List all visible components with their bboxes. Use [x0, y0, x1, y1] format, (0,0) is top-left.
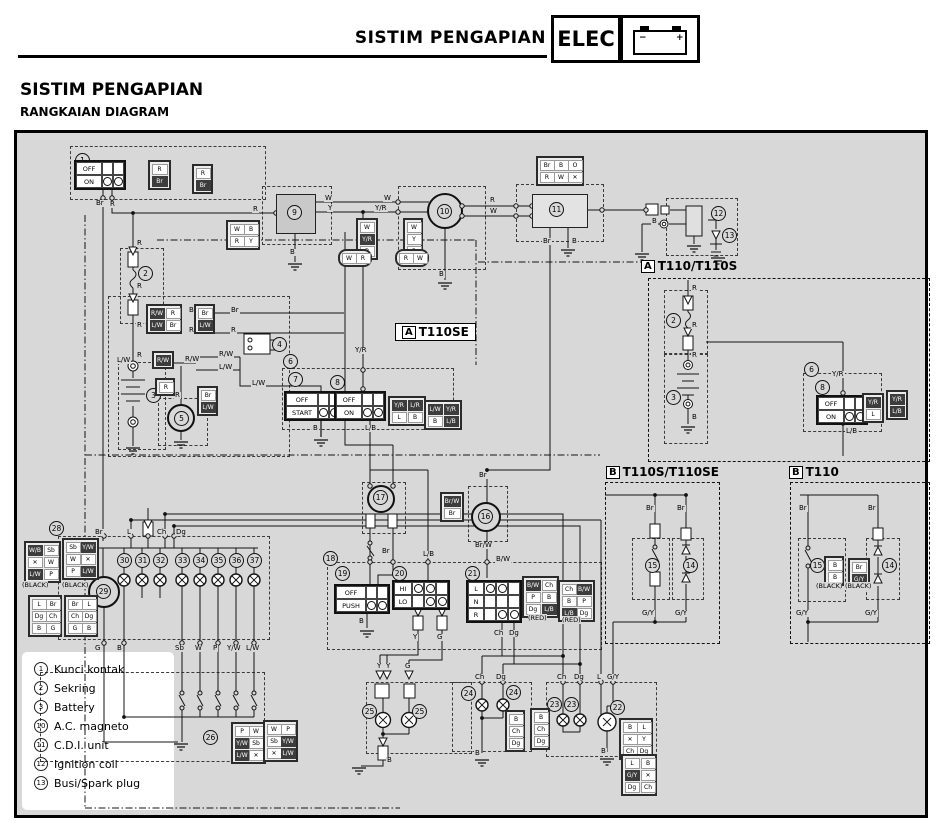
switch-cell: [377, 586, 388, 599]
pin: R: [399, 253, 414, 264]
switch-row-label: START: [286, 406, 318, 419]
pin: W/B: [28, 545, 43, 556]
connector[interactable]: Br/WBr: [440, 492, 464, 522]
connector[interactable]: RW: [395, 249, 429, 267]
component-number-22: 22: [610, 700, 625, 715]
section-label-t110se: AT110SE: [395, 323, 476, 341]
component-number-4: 4: [272, 337, 287, 352]
wire-label: L: [596, 674, 602, 681]
pin: Br: [196, 180, 211, 191]
pin: Y/R: [866, 397, 881, 408]
connector-color-marker: (RED): [528, 614, 547, 622]
switch-cell: [318, 393, 329, 406]
wire-label: L/W: [251, 380, 266, 387]
pin: Sb: [267, 736, 282, 747]
horn-switch-table[interactable]: OFF PUSH: [334, 584, 390, 614]
connector[interactable]: BrL/W: [194, 304, 215, 334]
component-number-15: 15: [810, 558, 825, 573]
pin: Ch: [68, 611, 83, 622]
switch-contact: [412, 582, 424, 595]
wire-label: Ch: [493, 630, 504, 637]
wire-label: W: [489, 208, 498, 215]
connector[interactable]: RBr: [192, 164, 213, 194]
pin: Br: [198, 308, 213, 319]
switch-row-label: ON: [336, 406, 362, 419]
pin: B: [828, 560, 843, 571]
switch-cell: [508, 582, 520, 595]
wire-label: B: [600, 748, 607, 755]
pin: L: [625, 758, 640, 769]
switch-row-label: ON: [76, 175, 102, 188]
section-label-t110: BT110: [789, 465, 839, 479]
component-number-24: 24: [461, 686, 476, 701]
legend-label: A.C. magneto: [54, 720, 129, 733]
component-number-15: 15: [645, 558, 660, 573]
battery-minus-sign: −: [639, 34, 647, 43]
wire-label: Br: [381, 548, 391, 555]
legend-number: 12: [34, 757, 48, 771]
wire-label: R: [136, 240, 143, 247]
pin: B: [623, 722, 638, 733]
component-number-6: 6: [804, 362, 819, 377]
legend-item: 12Ignition coil: [34, 757, 118, 771]
connector[interactable]: W/BSb✕WL/WP: [24, 541, 61, 583]
pin: Y: [407, 234, 422, 245]
component-number-21: 21: [465, 566, 480, 581]
component-number-24: 24: [506, 685, 521, 700]
pin: L/W: [281, 748, 296, 759]
wire-label: Br: [645, 505, 655, 512]
wire-label: Ch: [556, 674, 567, 681]
wire-label: R/W: [218, 351, 234, 358]
legend-number: 3: [34, 700, 48, 714]
legend-number: 1: [34, 662, 48, 676]
pin: ✕: [568, 172, 583, 183]
pin: Dg: [82, 611, 97, 622]
component-number-33: 33: [175, 553, 190, 568]
pin: L/B: [542, 604, 557, 615]
wire-label: R: [174, 392, 181, 399]
wire-label: Br/W: [474, 542, 493, 549]
wire-label: L/B: [364, 425, 377, 432]
component-number-10: 10: [437, 204, 452, 219]
component-number-9: 9: [287, 205, 302, 220]
pin: B: [32, 623, 47, 634]
switch-contact: [318, 406, 329, 419]
component-number-30: 30: [117, 553, 132, 568]
battery-plus-sign: +: [676, 34, 684, 43]
component-number-20: 20: [392, 566, 407, 581]
switch-row-label: N: [468, 595, 484, 608]
pin: Dg: [534, 736, 549, 747]
component-number-28: 28: [49, 521, 64, 536]
switch-row-label: OFF: [818, 397, 844, 410]
connector[interactable]: B/WChPBDgL/B: [522, 576, 559, 618]
section-tag: B: [789, 466, 803, 479]
connector-color-marker: (BLACK): [22, 581, 48, 589]
pin: B/W: [526, 580, 541, 591]
pin: B/W: [577, 584, 592, 595]
component-number-8: 8: [330, 375, 345, 390]
pin: L: [637, 722, 652, 733]
engine-stop-switch-table[interactable]: OFF ON: [334, 391, 386, 421]
pin: P: [526, 592, 541, 603]
pin: B: [408, 412, 423, 423]
wire-label: P: [212, 645, 218, 652]
wire-label: Br: [798, 505, 808, 512]
section-name: T110/T110S: [658, 259, 738, 273]
component-number-8: 8: [815, 380, 830, 395]
wire-label: B: [438, 271, 445, 278]
wire-label: R: [230, 327, 237, 334]
wire-label: R: [489, 197, 496, 204]
wire-label: B: [358, 618, 365, 625]
legend-label: Busi/Spark plug: [54, 777, 140, 790]
pin: W: [342, 253, 357, 264]
switch-contact: [496, 582, 508, 595]
wire-label: G/Y: [674, 610, 688, 617]
connector-color-marker: (BLACK): [62, 581, 88, 589]
connector[interactable]: BrL/W: [197, 386, 218, 416]
pin: Y/R: [890, 394, 905, 405]
connector[interactable]: Y/RL: [862, 393, 884, 423]
legend-item: 2Sekring: [34, 681, 96, 695]
pin: Ch: [46, 611, 61, 622]
connector-color-marker: (BLACK): [845, 582, 871, 590]
wire-label: R: [252, 206, 259, 213]
legend-item: 10A.C. magneto: [34, 719, 129, 733]
pin: Dg: [32, 611, 47, 622]
switch-row-label: OFF: [76, 162, 102, 175]
component-number-17: 17: [373, 490, 388, 505]
component-number-13: 13: [722, 228, 737, 243]
pin: Y/R: [444, 404, 459, 415]
pin: ✕: [81, 554, 96, 565]
pin: Y/R: [392, 400, 407, 411]
component-number-35: 35: [211, 553, 226, 568]
pin: P: [66, 566, 81, 577]
switch-cell: [508, 595, 520, 608]
component-number-14: 14: [683, 558, 698, 573]
connector[interactable]: WR: [338, 249, 372, 267]
pin: Sb: [249, 738, 264, 749]
pin: L: [82, 599, 97, 610]
wire-label: Br: [676, 505, 686, 512]
switch-row-label: PUSH: [336, 599, 366, 612]
pin: Br/W: [444, 496, 461, 507]
wire-label: Y: [412, 634, 418, 641]
pin: B: [828, 572, 843, 583]
component-number-25: 25: [412, 704, 427, 719]
component-number-16: 16: [478, 509, 493, 524]
wire-label: B: [474, 750, 481, 757]
pin: Dg: [509, 738, 524, 749]
wire-label: R: [136, 283, 143, 290]
section-label-t110s-t110se: BT110S/T110SE: [606, 465, 719, 479]
connector[interactable]: BrLChDgGB: [64, 595, 98, 637]
pin: W: [249, 726, 264, 737]
section-tag: A: [402, 326, 416, 339]
component17-box: [362, 482, 406, 534]
switch-cell: [436, 582, 448, 595]
switch-cell: [412, 595, 424, 608]
component-number-3: 3: [666, 390, 681, 405]
pin: W: [66, 554, 81, 565]
pin: W: [360, 222, 375, 233]
pin: P: [577, 596, 592, 607]
component-number-12: 12: [711, 206, 726, 221]
wire-label: R/W: [184, 356, 200, 363]
wire-label: Dg: [175, 529, 187, 536]
switch-contact: [362, 406, 373, 419]
pin: Y/R: [360, 234, 375, 245]
wire-label: Br: [94, 529, 104, 536]
pin: L/W: [81, 566, 96, 577]
switch-contact: [366, 599, 377, 612]
wire-label: B: [289, 249, 296, 256]
wire-label: Dg: [495, 674, 507, 681]
pin: B: [534, 712, 549, 723]
switch-cell: [844, 397, 855, 410]
section-name: T110S/T110SE: [623, 465, 719, 479]
legend-number: 11: [34, 738, 48, 752]
pin: Br: [540, 160, 555, 171]
connector[interactable]: PWY/WSbL/W✕: [231, 722, 266, 764]
component-number-19: 19: [335, 566, 350, 581]
component-number-14: 14: [882, 558, 897, 573]
section-label-t110-t110s: AT110/T110S: [641, 259, 737, 273]
wire-label: G: [94, 645, 101, 652]
connector-color-marker: (BLACK): [816, 582, 842, 590]
pin: ✕: [641, 770, 656, 781]
connector[interactable]: LBrDgChBG: [28, 595, 62, 637]
switch-contact: [484, 582, 496, 595]
pin: R/W: [150, 308, 165, 319]
component-number-36: 36: [229, 553, 244, 568]
switch-cell: [496, 595, 508, 608]
pin: L/W: [235, 750, 250, 761]
dimmer-switch-table[interactable]: HI LO: [392, 580, 450, 610]
pin: O: [568, 160, 583, 171]
ignition-coil-box: [666, 198, 738, 256]
wire-label: B: [386, 757, 393, 764]
pin: ✕: [28, 557, 43, 568]
legend-label: Kunci kontak: [54, 663, 124, 676]
switch-cell: [102, 162, 113, 175]
wire-label: B: [312, 425, 319, 432]
turn-signal-switch-table[interactable]: L N R: [466, 580, 522, 623]
pin: Ch: [509, 726, 524, 737]
elec-badge: ELEC: [551, 15, 621, 63]
connector[interactable]: SbY/WW✕PL/W: [62, 538, 99, 580]
connector[interactable]: R: [155, 378, 175, 396]
wire-label: L/W: [218, 364, 233, 371]
component-number-34: 34: [193, 553, 208, 568]
pin: W: [554, 172, 569, 183]
switch-contact: [113, 175, 124, 188]
connector[interactable]: R/W: [152, 351, 174, 369]
switch-row-label: R: [468, 608, 484, 621]
switch-contact: [508, 608, 520, 621]
component-number-25: 25: [362, 704, 377, 719]
pin: Ch: [542, 580, 557, 591]
pin: W: [230, 224, 245, 235]
connector[interactable]: BrBORW✕: [536, 156, 584, 186]
connector-color-marker: (RED): [562, 616, 581, 624]
pin: ✕: [267, 748, 282, 759]
switch-row-label: ON: [818, 410, 844, 423]
pin: Sb: [66, 542, 81, 553]
wire-label: G/Y: [864, 610, 878, 617]
connector[interactable]: Y/RL/RLB: [388, 396, 426, 426]
wire-label: B/W: [495, 556, 511, 563]
pin: B: [82, 623, 97, 634]
switch-row-label: HI: [394, 582, 412, 595]
connector[interactable]: WBRY: [226, 220, 260, 250]
legend-label: Sekring: [54, 682, 96, 695]
component-number-11: 11: [549, 202, 564, 217]
switch-row-label: OFF: [336, 586, 366, 599]
pin: B: [562, 596, 577, 607]
component-number-2: 2: [138, 266, 153, 281]
switch-contact: [373, 406, 384, 419]
switch-contact: [102, 175, 113, 188]
pin: L/W: [28, 569, 43, 580]
wire-label: B: [691, 414, 698, 421]
pin: Ch: [534, 724, 549, 735]
running-title: SISTIM PENGAPIAN: [0, 28, 546, 48]
pin: L: [392, 412, 407, 423]
pin: ✕: [623, 734, 638, 745]
wire-label: L: [126, 529, 132, 536]
switch-contact: [844, 410, 855, 423]
switch-contact: [424, 582, 436, 595]
page-subtitle: RANGKAIAN DIAGRAM: [20, 105, 169, 119]
wire-label: G: [404, 663, 411, 670]
connector[interactable]: Y/RL/B: [886, 390, 908, 420]
header-rule: [18, 55, 547, 58]
wire-label: B: [116, 645, 123, 652]
wire-label: Dg: [573, 674, 585, 681]
pin: Y/W: [235, 738, 250, 749]
pin: B: [428, 416, 443, 427]
pin: P: [44, 569, 59, 580]
pin: L/W: [201, 402, 216, 413]
pin: B: [554, 160, 569, 171]
section-name: T110SE: [419, 325, 469, 339]
pin: Br: [166, 320, 181, 331]
legend-item: 13Busi/Spark plug: [34, 776, 140, 790]
wire-label: L/W: [116, 357, 131, 364]
pin: W: [267, 724, 282, 735]
connector[interactable]: WPSbY/W✕L/W: [263, 720, 298, 762]
connector[interactable]: L/WY/RBL/B: [424, 400, 462, 430]
pin: R: [540, 172, 555, 183]
component-number-29: 29: [96, 584, 111, 599]
pin: W: [413, 253, 428, 264]
section-name: T110: [806, 465, 839, 479]
legend-number: 2: [34, 681, 48, 695]
pin: Br: [68, 599, 83, 610]
pin: R/W: [156, 355, 171, 366]
switch-cell: [362, 393, 373, 406]
legend-label: C.D.I. unit: [54, 739, 109, 752]
component-number-18: 18: [323, 551, 338, 566]
pin: L/B: [444, 416, 459, 427]
pin: Y: [637, 734, 652, 745]
component-number-32: 32: [153, 553, 168, 568]
pin: L: [866, 409, 881, 420]
connector[interactable]: R/WRL/WBr: [146, 304, 182, 334]
switch-row-label: OFF: [336, 393, 362, 406]
wire-label: Y/W: [226, 645, 242, 652]
legend-number: 13: [34, 776, 48, 790]
wire-label: G: [436, 634, 443, 641]
pin: Br: [46, 599, 61, 610]
engine-stop-switch-table-t110s[interactable]: OFF ON: [816, 395, 868, 425]
pin: G: [68, 623, 83, 634]
pin: G: [46, 623, 61, 634]
wire-label: Y/R: [354, 347, 368, 354]
switch-contact: [436, 595, 448, 608]
component-number-31: 31: [135, 553, 150, 568]
wire-label: L/B: [422, 551, 435, 558]
switch-cell: [366, 586, 377, 599]
pin: B: [641, 758, 656, 769]
pin: B: [542, 592, 557, 603]
pin: L/B: [890, 406, 905, 417]
connector[interactable]: LBG/Y✕DgCh: [621, 754, 657, 796]
wire-label: W: [324, 195, 333, 202]
wire-label: Br: [867, 505, 877, 512]
wire-label: Br: [95, 200, 105, 207]
pin: ✕: [249, 750, 264, 761]
wire-label: Sb: [174, 645, 185, 652]
pin: L/W: [198, 320, 213, 331]
connector[interactable]: BChDg: [505, 710, 525, 752]
pin: G/Y: [625, 770, 640, 781]
pin: B: [244, 224, 259, 235]
wire-label: B: [571, 238, 578, 245]
pin: L/W: [428, 404, 443, 415]
pin: B: [509, 714, 524, 725]
pin: R: [152, 164, 168, 175]
pin: Br: [201, 390, 216, 401]
wiring-diagram-page: SISTIM PENGAPIAN ELEC − + SISTIM PENGAPI…: [0, 0, 942, 827]
switch-row-label: LO: [394, 595, 412, 608]
wire-label: W: [383, 195, 392, 202]
key-switch-table[interactable]: OFF ON: [74, 160, 126, 190]
pin: L: [32, 599, 47, 610]
wire-label: Y: [376, 663, 382, 670]
wire-label: R: [109, 201, 116, 208]
legend-label: Battery: [54, 701, 95, 714]
connector[interactable]: RBr: [148, 160, 171, 190]
wire-label: Y: [385, 663, 391, 670]
wire-label: G/Y: [795, 610, 809, 617]
pin: Dg: [625, 782, 640, 793]
wire-label: B: [651, 218, 658, 225]
connector[interactable]: BChDg: [530, 708, 550, 750]
pin: Br: [444, 508, 461, 519]
wire-label: Ch: [156, 529, 167, 536]
section-tag: A: [641, 260, 655, 273]
component-number-2: 2: [666, 313, 681, 328]
pin: Ch: [562, 584, 577, 595]
legend-item: 11C.D.I. unit: [34, 738, 109, 752]
legend-item: 1Kunci kontak: [34, 662, 124, 676]
wire-label: R: [691, 322, 698, 329]
